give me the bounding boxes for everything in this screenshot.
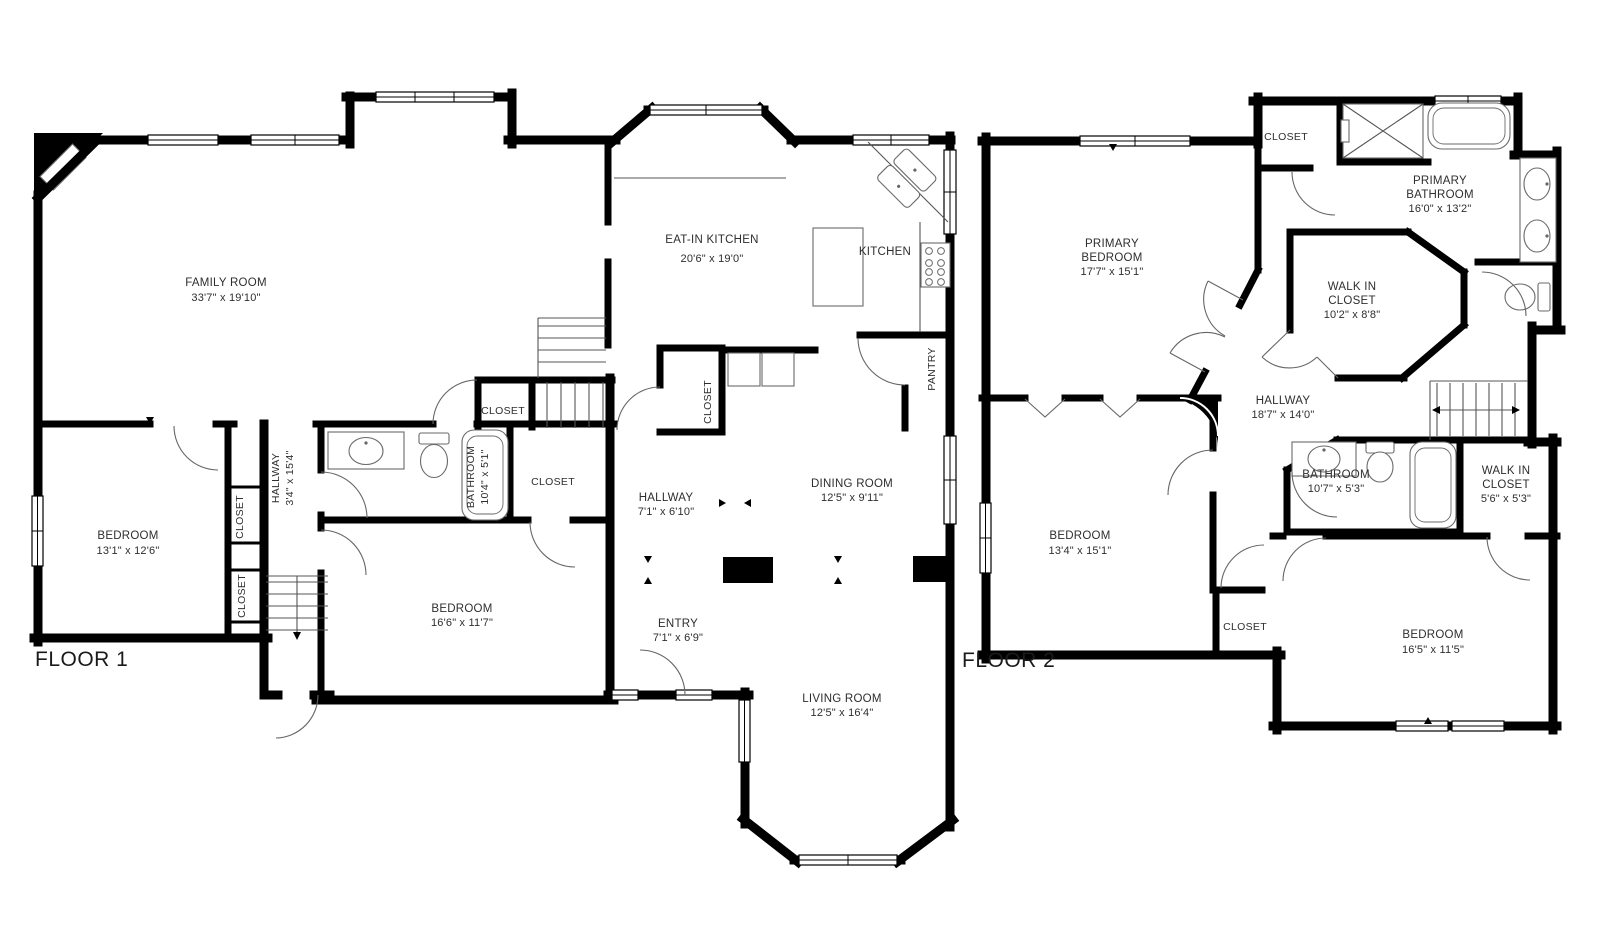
walk-in-closet-label2: CLOSET [1482, 479, 1530, 491]
primary-bedroom-label2: BEDROOM [1081, 252, 1142, 264]
bedroom-left-dims: 13'1" x 12'6" [97, 545, 160, 557]
bathtub-icon [1410, 442, 1456, 528]
eat-in-kitchen-dims: 20'6" x 19'0" [681, 253, 744, 265]
toilet-icon [1505, 284, 1535, 310]
hallway-label: HALLWAY [639, 492, 694, 504]
floor1-interior-walls [38, 140, 951, 700]
toilet-tank-icon [1538, 283, 1550, 311]
walk-in-closet-label1: WALK IN [1482, 465, 1531, 477]
toilet-tank-icon [419, 433, 449, 444]
bedroom-left-label: BEDROOM [97, 530, 158, 542]
stair-arrow-right [1512, 406, 1520, 414]
primary-bathroom-dims: 16'0" x 13'2" [1409, 203, 1472, 215]
stove-icon [921, 243, 950, 287]
floor1-title: FLOOR 1 [35, 648, 128, 671]
hallway-side-label: HALLWAY [270, 453, 282, 503]
floor2-bedroom-left-dims: 13'4" x 15'1" [1049, 545, 1112, 557]
primary-bedroom-dims: 17'7" x 15'1" [1081, 266, 1144, 278]
walk-in-closet-primary-label1: WALK IN [1328, 281, 1377, 293]
kitchen-sink-icon [876, 147, 938, 209]
hallway-side-dims: 3'4" x 15'4" [284, 450, 296, 505]
primary-bedroom-label1: PRIMARY [1085, 238, 1139, 250]
chimney-pillar [913, 556, 951, 582]
walk-in-closet-primary-dims: 10'2" x 8'8" [1324, 309, 1381, 321]
dining-room-label: DINING ROOM [811, 478, 893, 490]
bifold-closet-doors [1025, 399, 1140, 417]
floor2-bathroom-dims: 10'7" x 5'3" [1308, 483, 1365, 495]
floor1-door-arcs [174, 338, 905, 738]
floorplan-page: FAMILY ROOM 33'7" x 19'10" EAT-IN KITCHE… [0, 0, 1600, 940]
sideboard [728, 353, 760, 386]
floor2-bedroom-right-dims: 16'5" x 11'5" [1402, 644, 1464, 656]
floor2-closet-mid-label: CLOSET [1223, 621, 1267, 633]
living-room-dims: 12'5" x 16'4" [811, 707, 874, 719]
shower-icon [1341, 104, 1423, 158]
pantry-label: PANTRY [926, 347, 938, 390]
dining-room-dims: 12'5" x 9'11" [821, 492, 883, 504]
kitchen-island [813, 228, 863, 306]
floor1-plan: FAMILY ROOM 33'7" x 19'10" EAT-IN KITCHE… [32, 92, 956, 865]
walk-in-closet-primary-label2: CLOSET [1328, 295, 1376, 307]
sideboard [762, 353, 794, 386]
closet-bath-label: CLOSET [531, 476, 575, 488]
floor2-bathroom-label: BATHROOM [1302, 469, 1370, 481]
floor2-hallway-dims: 18'7" x 14'0" [1252, 409, 1315, 421]
floor2-closet-top-label: CLOSET [1264, 131, 1308, 143]
closet-stairs-label: CLOSET [481, 405, 525, 417]
bathroom-label: BATHROOM [465, 446, 477, 508]
toilet-icon [1367, 452, 1393, 482]
floor2-bedroom-left-label: BEDROOM [1049, 530, 1110, 542]
walk-in-closet-dims: 5'6" x 5'3" [1481, 493, 1531, 505]
toilet-icon [421, 445, 448, 478]
closet-kitchen-label: CLOSET [702, 380, 714, 424]
family-room-dims: 33'7" x 19'10" [191, 292, 260, 304]
bedroom-center-dims: 16'6" x 11'7" [431, 617, 493, 629]
staircase-main [538, 318, 606, 428]
primary-bathroom-label2: BATHROOM [1406, 189, 1474, 201]
floorplan-canvas: FAMILY ROOM 33'7" x 19'10" EAT-IN KITCHE… [0, 0, 1600, 940]
floor2-plan: PRIMARY BEDROOM 17'7" x 15'1" PRIMARY BA… [962, 96, 1561, 731]
hall-pillar [723, 557, 773, 583]
primary-bathroom-label1: PRIMARY [1413, 175, 1467, 187]
bedroom-center-label: BEDROOM [431, 603, 492, 615]
family-room-label: FAMILY ROOM [185, 277, 267, 289]
bathtub-icon [1428, 103, 1510, 149]
floor2-title: FLOOR 2 [962, 649, 1055, 672]
floor2-interior-walls [982, 101, 1557, 655]
toilet-tank-icon [1366, 442, 1394, 453]
kitchen-label: KITCHEN [859, 246, 911, 258]
stair-down-arrow [293, 632, 301, 640]
floor2-bedroom-right-label: BEDROOM [1402, 629, 1463, 641]
entry-dims: 7'1" x 6'9" [653, 632, 703, 644]
closet-hall-lower-label: CLOSET [236, 574, 248, 618]
floor2-hallway-label: HALLWAY [1256, 395, 1311, 407]
living-room-label: LIVING ROOM [802, 693, 881, 705]
hallway-dims: 7'1" x 6'10" [638, 506, 695, 518]
closet-hall-upper-label: CLOSET [234, 495, 246, 539]
stair-arrow-left [1432, 406, 1440, 414]
eat-in-kitchen-label: EAT-IN KITCHEN [665, 234, 758, 246]
entry-label: ENTRY [658, 618, 698, 630]
bathroom-dims: 10'4" x 5'1" [479, 449, 491, 504]
